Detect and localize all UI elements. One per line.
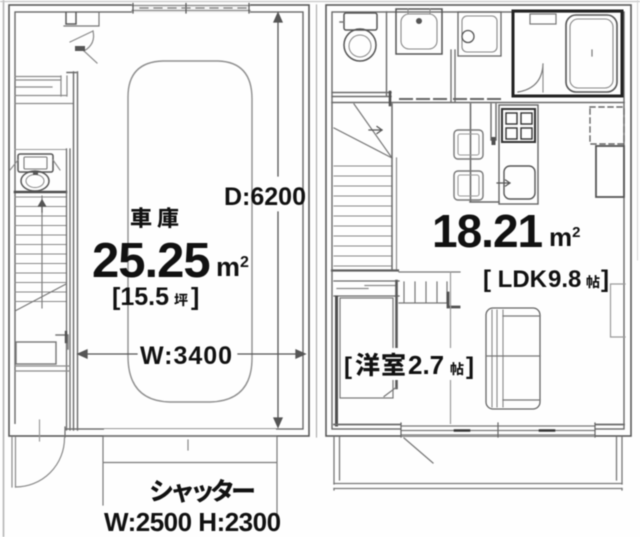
svg-text:W:3400: W:3400 bbox=[140, 342, 233, 370]
svg-text:]: ] bbox=[191, 283, 199, 311]
svg-text:]: ] bbox=[601, 266, 609, 293]
svg-text:D:6200: D:6200 bbox=[224, 183, 306, 211]
svg-text:25.25: 25.25 bbox=[92, 234, 210, 288]
svg-text:18.21: 18.21 bbox=[432, 205, 543, 257]
svg-text:W:2500 H:2300: W:2500 H:2300 bbox=[104, 507, 281, 537]
svg-text:[ LDK9.8: [ LDK9.8 bbox=[483, 266, 581, 293]
svg-text:[: [ bbox=[344, 353, 352, 380]
svg-text:2.7: 2.7 bbox=[408, 350, 444, 380]
svg-text:]: ] bbox=[466, 353, 474, 380]
svg-text:[15.5: [15.5 bbox=[112, 283, 169, 311]
